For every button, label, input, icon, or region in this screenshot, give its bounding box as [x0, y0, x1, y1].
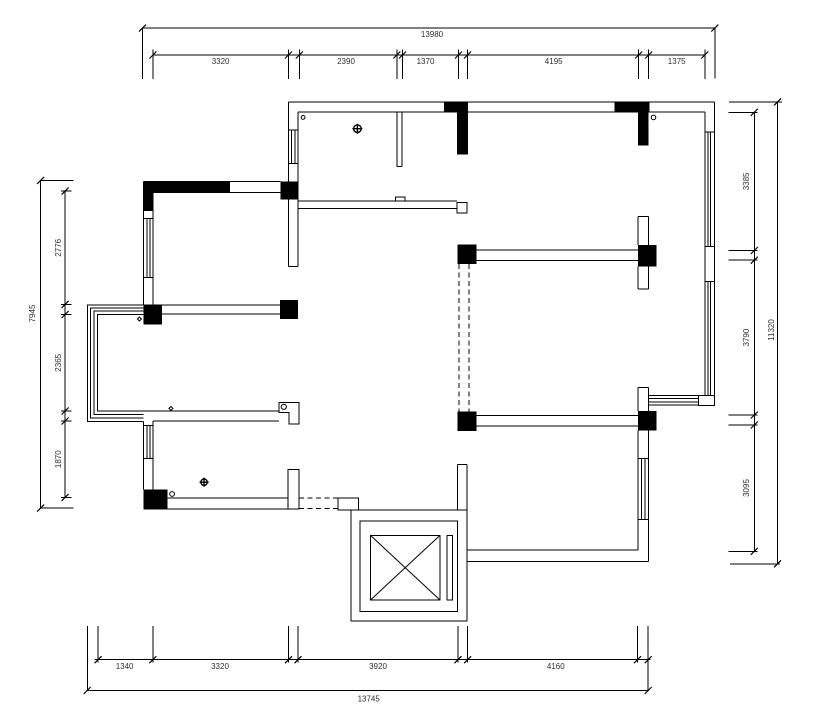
svg-text:4195: 4195 — [545, 57, 563, 66]
svg-text:3920: 3920 — [369, 662, 387, 671]
svg-text:1340: 1340 — [116, 662, 134, 671]
svg-text:11320: 11320 — [767, 319, 776, 341]
svg-text:1870: 1870 — [54, 450, 63, 468]
svg-text:2390: 2390 — [337, 57, 355, 66]
svg-text:2776: 2776 — [54, 238, 63, 256]
svg-text:3790: 3790 — [742, 328, 751, 346]
svg-text:3385: 3385 — [742, 172, 751, 190]
svg-text:1375: 1375 — [668, 57, 686, 66]
svg-text:2365: 2365 — [54, 353, 63, 371]
svg-text:13745: 13745 — [358, 695, 381, 704]
svg-text:4160: 4160 — [547, 662, 565, 671]
svg-text:13980: 13980 — [421, 30, 444, 39]
svg-text:3320: 3320 — [211, 662, 229, 671]
svg-text:3320: 3320 — [212, 57, 230, 66]
svg-text:7945: 7945 — [28, 304, 37, 322]
svg-text:1370: 1370 — [417, 57, 435, 66]
svg-text:3095: 3095 — [742, 479, 751, 497]
